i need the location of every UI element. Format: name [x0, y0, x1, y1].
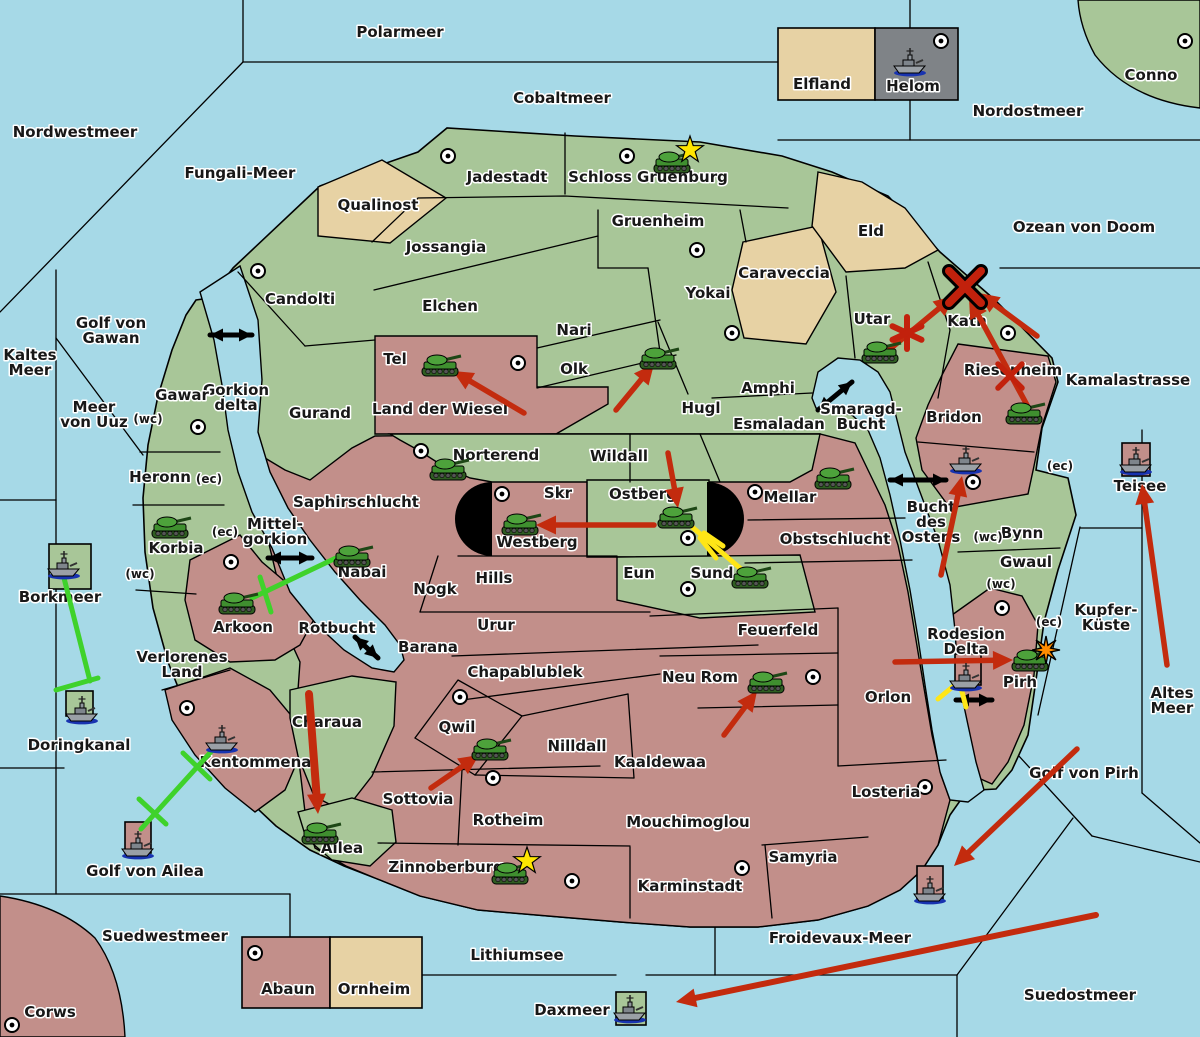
- territory-label-hills[interactable]: Hills: [476, 569, 513, 587]
- supply-center-core: [686, 587, 691, 592]
- supply-center-core: [1183, 39, 1188, 44]
- strategy-game-map[interactable]: PolarmeerNordwestmeerFungali-MeerCobaltm…: [0, 0, 1200, 1037]
- tank-unit[interactable]: [334, 546, 373, 567]
- sea-label-froidevaux-meer[interactable]: Froidevaux-Meer: [769, 929, 912, 947]
- sea-label-altes-meer[interactable]: AltesMeer: [1150, 684, 1193, 717]
- sea-label-ozean-von-doom[interactable]: Ozean von Doom: [1013, 218, 1155, 236]
- territory-label-rotheim[interactable]: Rotheim: [473, 811, 544, 829]
- territory-label-gurand[interactable]: Gurand: [289, 404, 351, 422]
- supply-center-core: [256, 269, 261, 274]
- territory-label-candolti[interactable]: Candolti: [265, 290, 335, 308]
- tank-unit[interactable]: [748, 672, 787, 693]
- territory-label-conno[interactable]: Conno: [1125, 66, 1178, 84]
- territory-label-esmaladan[interactable]: Esmaladan: [733, 415, 825, 433]
- territory-label-land-der-wiesel[interactable]: Land der Wiesel: [372, 400, 508, 418]
- territory-label-barana[interactable]: Barana: [398, 638, 458, 656]
- territory-label-kaaldewaa[interactable]: Kaaldewaa: [614, 753, 706, 771]
- supply-center-core: [253, 951, 258, 956]
- territory-label-chapablublek[interactable]: Chapablublek: [467, 663, 583, 681]
- coast-label[interactable]: (ec): [1036, 615, 1062, 629]
- territory-label-karminstadt[interactable]: Karminstadt: [638, 877, 743, 895]
- territory-label-sottovia[interactable]: Sottovia: [383, 790, 454, 808]
- supply-center-core: [491, 776, 496, 781]
- territory-label-orlon[interactable]: Orlon: [865, 688, 911, 706]
- supply-center-core: [923, 785, 928, 790]
- supply-center-core: [939, 39, 944, 44]
- territory-label-helom[interactable]: Helom: [886, 77, 940, 95]
- territory-label-corws[interactable]: Corws: [24, 1003, 76, 1021]
- territory-label-bridon[interactable]: Bridon: [926, 408, 982, 426]
- supply-center-core: [500, 492, 505, 497]
- territory-label-saphirschlucht[interactable]: Saphirschlucht: [293, 493, 419, 511]
- sea-label-doringkanal[interactable]: Doringkanal: [28, 736, 131, 754]
- tank-unit[interactable]: [219, 593, 258, 614]
- sea-label-suedostmeer[interactable]: Suedostmeer: [1024, 986, 1137, 1004]
- tank-unit[interactable]: [862, 342, 901, 363]
- supply-center-core: [229, 560, 234, 565]
- supply-center-core: [419, 449, 424, 454]
- tank-unit[interactable]: [658, 507, 697, 528]
- supply-center-core: [625, 154, 630, 159]
- sea-label-kamalastrasse[interactable]: Kamalastrasse: [1066, 371, 1190, 389]
- supply-center-core: [196, 425, 201, 430]
- tank-unit[interactable]: [1006, 403, 1045, 424]
- territory-label-nari[interactable]: Nari: [556, 321, 591, 339]
- supply-center-core: [695, 248, 700, 253]
- coast-label[interactable]: (wc): [973, 530, 1002, 544]
- sea-label-lithiumsee[interactable]: Lithiumsee: [470, 946, 563, 964]
- sea-label-cobaltmeer[interactable]: Cobaltmeer: [513, 89, 611, 107]
- sea-label-golf-von-ailea[interactable]: Golf von Ailea: [86, 862, 204, 880]
- territory-label-jadestadt[interactable]: Jadestadt: [466, 168, 548, 186]
- territory-label-samyria[interactable]: Samyria: [769, 848, 838, 866]
- territory-label-yokai[interactable]: Yokai: [684, 284, 730, 302]
- sea-label-daxmeer[interactable]: Daxmeer: [534, 1001, 610, 1019]
- sea-label-mittel-gorkion[interactable]: Mittel-gorkion: [243, 515, 308, 548]
- territory-label-zinnoberburg[interactable]: Zinnoberburg: [388, 858, 504, 876]
- supply-center-core: [570, 879, 575, 884]
- territory-label-eun[interactable]: Eun: [623, 564, 655, 582]
- sea-label-borkmeer[interactable]: Borkmeer: [19, 588, 102, 606]
- tank-unit[interactable]: [502, 514, 541, 535]
- territory-label-wildall[interactable]: Wildall: [590, 447, 648, 465]
- territory-label-tel[interactable]: Tel: [383, 350, 407, 368]
- territory-label-gruenheim[interactable]: Gruenheim: [612, 212, 705, 230]
- tank-unit[interactable]: [430, 459, 469, 480]
- sea-label-suedwestmeer[interactable]: Suedwestmeer: [102, 927, 228, 945]
- tank-unit[interactable]: [815, 468, 854, 489]
- sea-label-polarmeer[interactable]: Polarmeer: [356, 23, 444, 41]
- territory-label-sund[interactable]: Sund: [691, 564, 734, 582]
- territory-label-schloss-gruenburg[interactable]: Schloss Gruenburg: [568, 168, 728, 186]
- coast-label[interactable]: (ec): [196, 472, 222, 486]
- sea-label-fungali-meer[interactable]: Fungali-Meer: [185, 164, 296, 182]
- coast-label[interactable]: (ec): [1047, 459, 1073, 473]
- tank-unit[interactable]: [640, 348, 679, 369]
- territory-label-nilldall[interactable]: Nilldall: [547, 737, 606, 755]
- sea-label-nordostmeer[interactable]: Nordostmeer: [973, 102, 1084, 120]
- supply-center-core: [1000, 606, 1005, 611]
- territory-label-hugl[interactable]: Hugl: [681, 399, 720, 417]
- supply-center-core: [446, 154, 451, 159]
- territory-label-nogk[interactable]: Nogk: [413, 580, 458, 598]
- territory-label-korbia[interactable]: Korbia: [148, 539, 203, 557]
- territory-label-elfland[interactable]: Elfland: [793, 75, 851, 93]
- territory-label-obstschlucht[interactable]: Obstschlucht: [780, 530, 891, 548]
- supply-center-core: [686, 536, 691, 541]
- territory-label-kentommenai[interactable]: Kentommenai: [199, 753, 316, 771]
- coast-label[interactable]: (wc): [986, 577, 1015, 591]
- attack-arrow: [895, 660, 1003, 662]
- territory-label-feuerfeld[interactable]: Feuerfeld: [738, 621, 819, 639]
- supply-center-core: [185, 706, 190, 711]
- supply-center-core: [458, 695, 463, 700]
- territory-label-skr[interactable]: Skr: [544, 484, 573, 502]
- territory-label-heronn[interactable]: Heronn: [129, 468, 191, 486]
- sea-label-nordwestmeer[interactable]: Nordwestmeer: [13, 123, 138, 141]
- tank-unit[interactable]: [152, 517, 191, 538]
- territory-label-westberg[interactable]: Westberg: [496, 533, 577, 551]
- sea-label-rotbucht[interactable]: Rotbucht: [298, 619, 375, 637]
- territory-label-jossangia[interactable]: Jossangia: [405, 238, 487, 256]
- territory-label-utar[interactable]: Utar: [854, 310, 891, 328]
- territory-label-losteria[interactable]: Losteria: [852, 783, 921, 801]
- coast-label[interactable]: (ec): [212, 525, 238, 539]
- sea-label-golf-von-gawan[interactable]: Golf vonGawan: [76, 314, 146, 347]
- supply-center-core: [811, 675, 816, 680]
- supply-center-core: [753, 490, 758, 495]
- territory-label-gawar[interactable]: Gawar: [155, 386, 209, 404]
- coast-label[interactable]: (wc): [133, 412, 162, 426]
- tank-unit[interactable]: [302, 823, 341, 844]
- supply-center-core: [971, 480, 976, 485]
- sea-label-kupfer-k-ste[interactable]: Kupfer-Küste: [1074, 601, 1137, 634]
- territory-label-qualinost[interactable]: Qualinost: [338, 196, 419, 214]
- territory-label-ostberg[interactable]: Ostberg: [609, 485, 677, 503]
- sea-label-kaltes-meer[interactable]: KaltesMeer: [3, 346, 56, 379]
- supply-center-core: [10, 1023, 15, 1028]
- territory-label-arkoon[interactable]: Arkoon: [213, 618, 273, 636]
- territory-label-bynn[interactable]: Bynn: [1001, 524, 1044, 542]
- territory-label-mouchimoglou[interactable]: Mouchimoglou: [626, 813, 749, 831]
- territory-label-caraveccia[interactable]: Caraveccia: [738, 264, 830, 282]
- tank-unit[interactable]: [472, 739, 511, 760]
- territory-label-amphi[interactable]: Amphi: [741, 379, 795, 397]
- territory-label-eld[interactable]: Eld: [858, 222, 884, 240]
- map-canvas[interactable]: PolarmeerNordwestmeerFungali-MeerCobaltm…: [0, 0, 1200, 1037]
- tank-unit[interactable]: [422, 355, 461, 376]
- coast-label[interactable]: (wc): [125, 567, 154, 581]
- territory-label-qwil[interactable]: Qwil: [439, 718, 476, 736]
- territory-label-ornheim[interactable]: Ornheim: [338, 980, 410, 998]
- tank-unit[interactable]: [732, 567, 771, 588]
- supply-center-core: [516, 361, 521, 366]
- explosion-marker: [1032, 636, 1060, 664]
- territory-label-urur[interactable]: Urur: [477, 616, 515, 634]
- territory-label-mellar[interactable]: Mellar: [764, 488, 818, 506]
- territory-label-pirh[interactable]: Pirh: [1003, 673, 1037, 691]
- territory-label-neu-rom[interactable]: Neu Rom: [662, 668, 738, 686]
- territory-label-abaun[interactable]: Abaun: [261, 980, 315, 998]
- box-borkmeer-box[interactable]: [49, 544, 91, 589]
- supply-center-core: [740, 866, 745, 871]
- territory-label-elchen[interactable]: Elchen: [422, 297, 478, 315]
- territory-label-charaua[interactable]: Charaua: [292, 713, 362, 731]
- supply-center-core: [730, 331, 735, 336]
- territory-label-gwaul[interactable]: Gwaul: [1000, 553, 1052, 571]
- supply-center-core: [1006, 331, 1011, 336]
- territory-label-olk[interactable]: Olk: [560, 360, 589, 378]
